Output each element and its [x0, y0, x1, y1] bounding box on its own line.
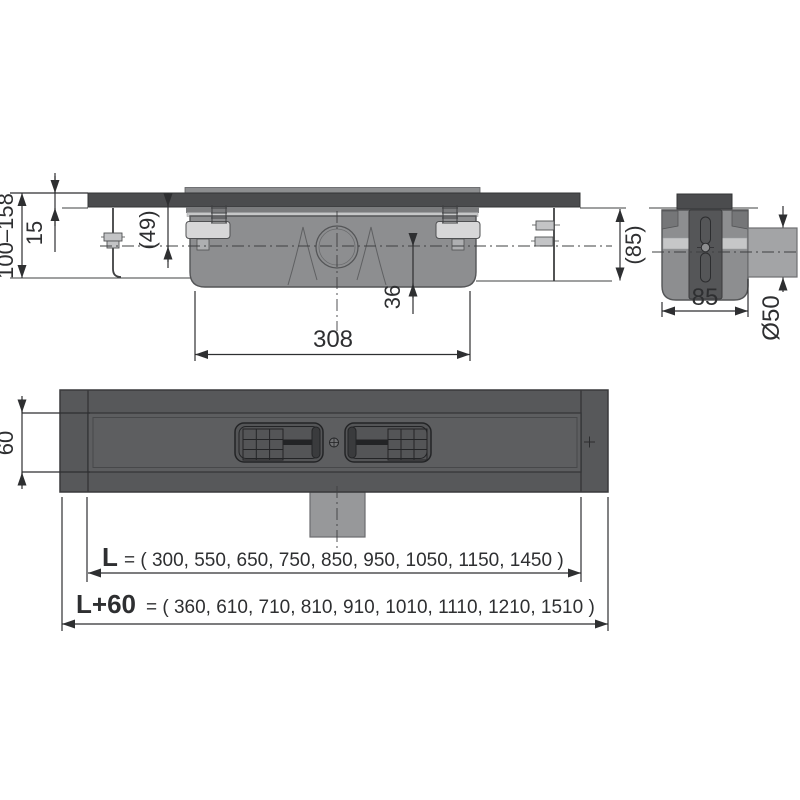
dim-length-l-values: = ( 300, 550, 650, 750, 850, 950, 1050, …: [124, 550, 564, 571]
front-view: 100–158 15 (49) 36 308: [0, 173, 646, 361]
dim-pipe-diameter-label: Ø50: [758, 295, 785, 340]
dim-tile-thickness-label: 15: [22, 221, 47, 245]
bracket-right-bolt-2: [535, 237, 553, 246]
side-ear-right: [732, 211, 748, 229]
dim-length-l60-values: = ( 360, 610, 710, 810, 910, 1010, 1110,…: [146, 597, 595, 618]
dim-axis-to-bottom-label: 36: [380, 285, 405, 309]
grate-screw: [330, 438, 339, 447]
plan-outlet-tab: [310, 492, 365, 537]
dim-length-l60-symbol: L+60: [76, 589, 136, 619]
clip-right: [436, 222, 480, 239]
side-ear-left: [662, 211, 678, 229]
grate-lock-left: [235, 423, 323, 462]
clip-left: [186, 222, 230, 239]
plan-view: 60 L = ( 300, 550, 650, 750, 850, 950, 1…: [0, 390, 608, 631]
bracket-left-nut: [107, 241, 119, 248]
dim-depth-to-axis-label: (49): [135, 210, 160, 249]
side-tile-bar: [677, 194, 732, 209]
dim-install-depth: (85): [620, 209, 646, 281]
dim-height-range-label: 100–158: [0, 193, 18, 279]
technical-drawing-page: 100–158 15 (49) 36 308: [0, 0, 800, 800]
bracket-left-bolt: [104, 233, 122, 241]
clip-bolt-left: [197, 239, 209, 250]
outlet-pipe: [748, 228, 797, 277]
channel-rim: [186, 207, 479, 213]
tile-bar: [88, 193, 580, 207]
bracket-right-bolt-1: [536, 221, 554, 230]
dim-install-depth-label: (85): [621, 225, 646, 264]
grate-lock-right: [345, 423, 431, 462]
clip-bolt-right: [452, 239, 464, 250]
dim-trap-width: 308: [195, 291, 470, 361]
dim-channel-width-label: 60: [0, 431, 18, 455]
dim-tile-thickness: 15: [22, 173, 55, 252]
dim-body-width-label: 85: [692, 284, 719, 311]
dim-length-l-symbol: L: [102, 542, 118, 572]
dim-trap-width-label: 308: [313, 326, 353, 353]
side-bolt: [701, 243, 709, 251]
drawing-canvas: 100–158 15 (49) 36 308: [0, 0, 800, 800]
side-view: 85 Ø50: [649, 194, 799, 341]
